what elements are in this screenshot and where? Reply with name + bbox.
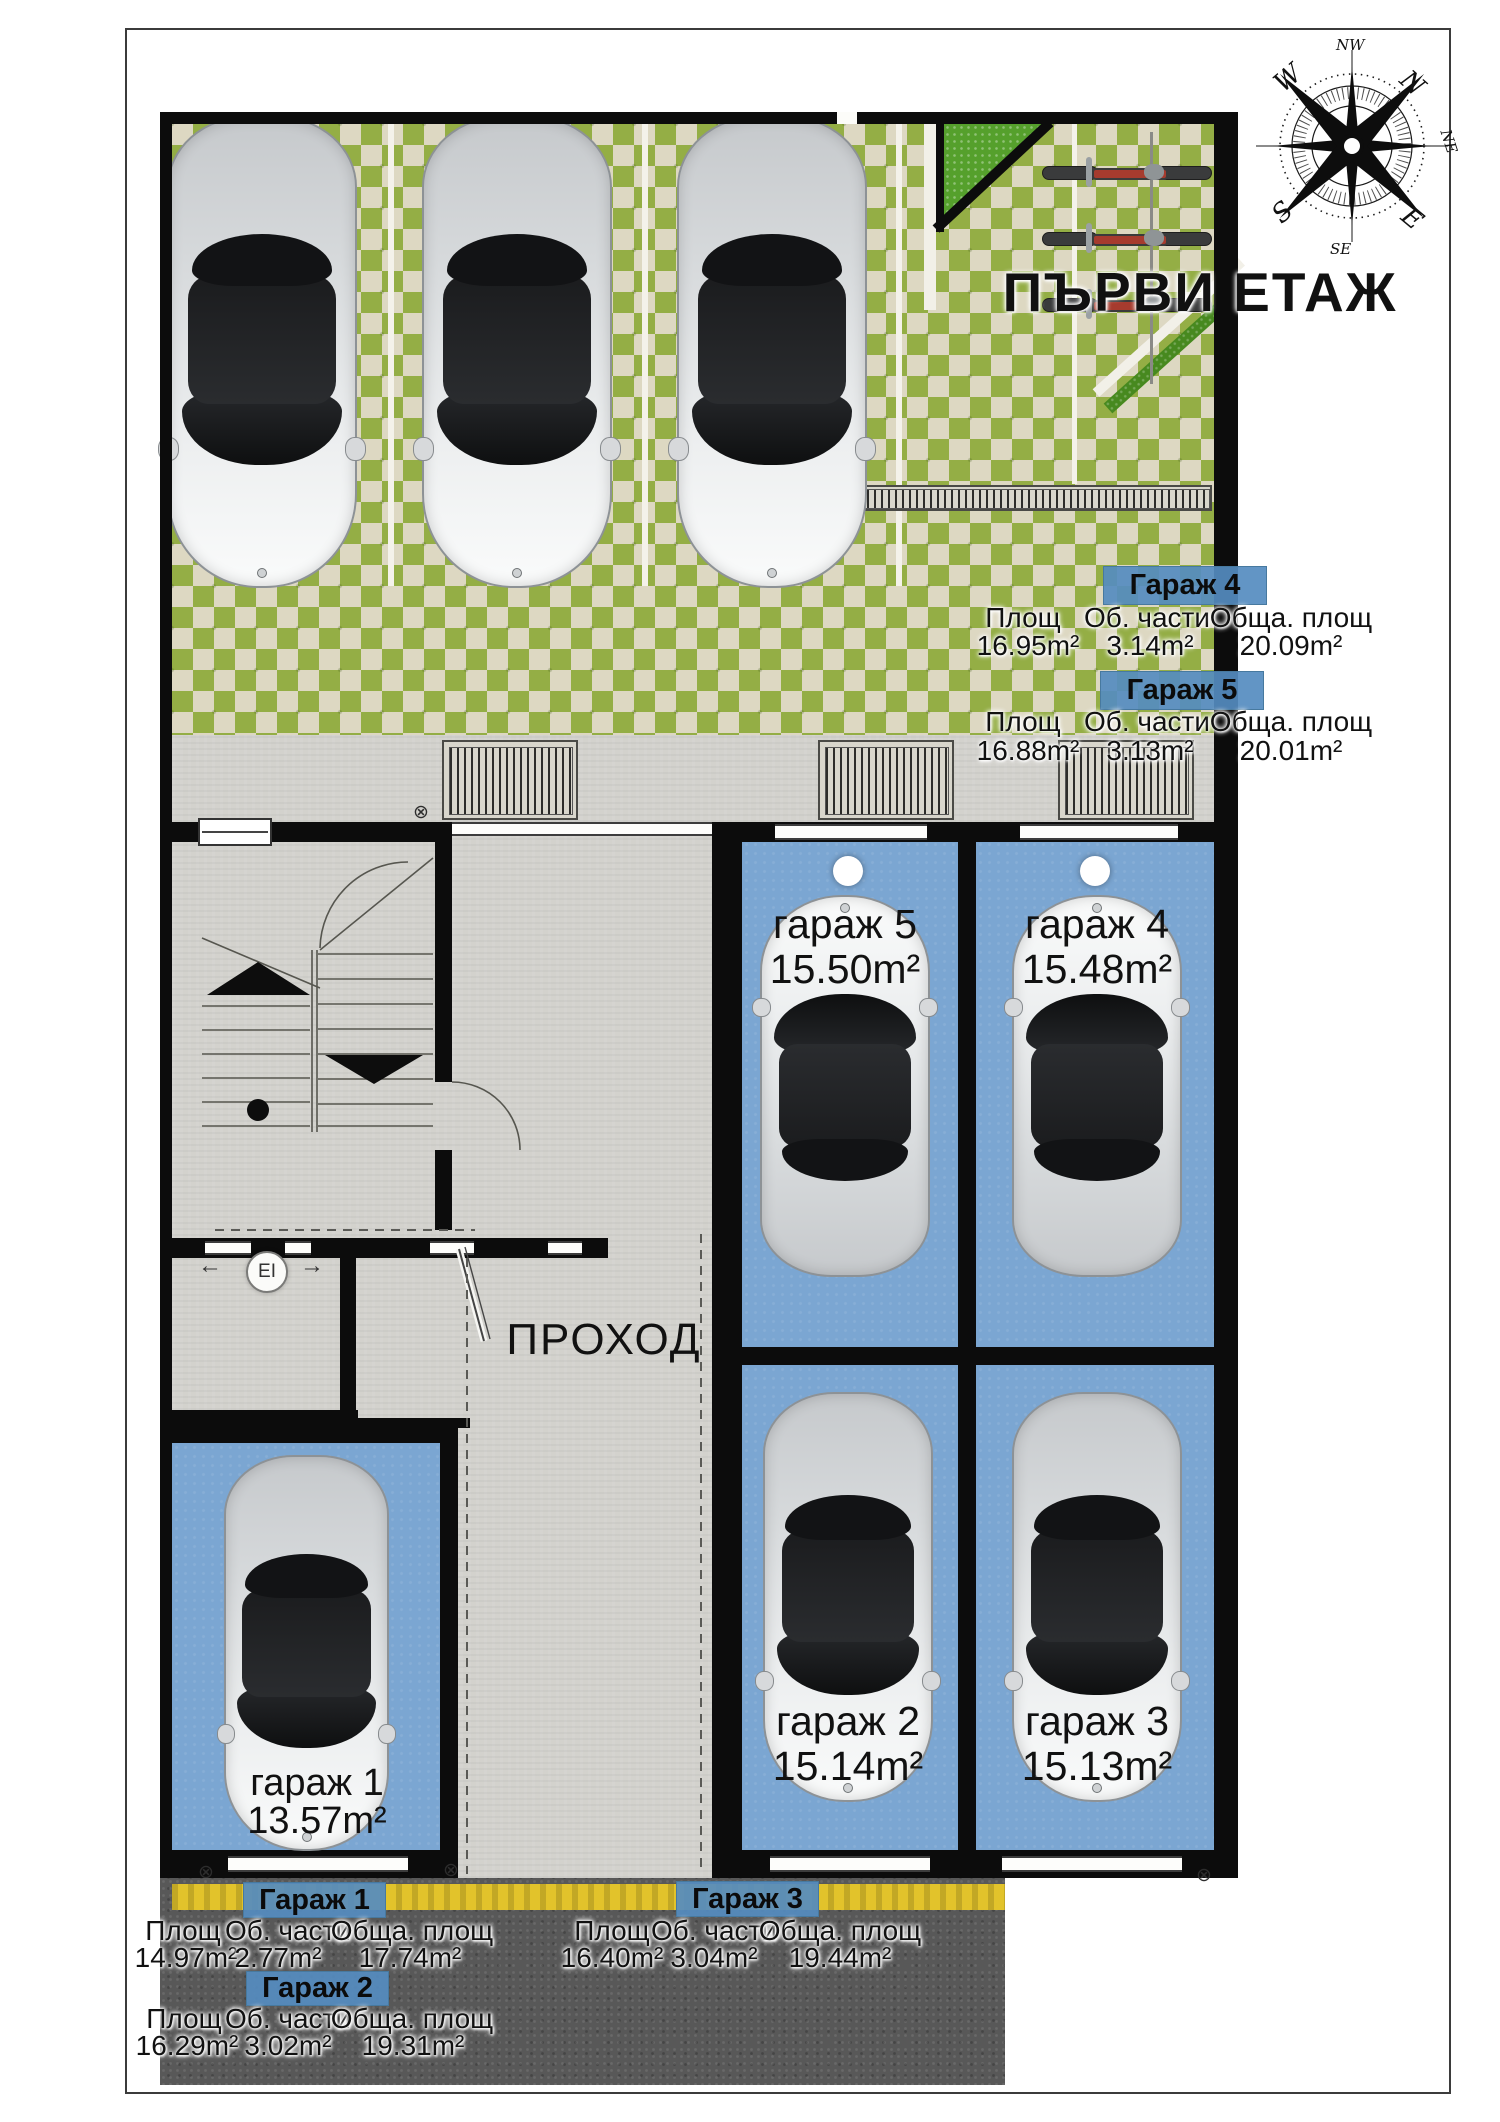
col-label-common: Об. части [1084,603,1210,632]
col-label-area: Площ [985,603,1060,632]
garage-2-area: 15.14m² [773,1745,923,1788]
value-total: 19.31m² [362,2031,465,2060]
garage-3-area: 15.13m² [1022,1745,1172,1788]
compass-label-se: SE [1330,240,1351,258]
col-label-area: Площ [985,707,1060,736]
value-common: 3.04m² [670,1943,757,1972]
garage-1-area: 13.57m² [247,1802,386,1842]
compass-label-ne: NE [1436,126,1461,155]
col-label-total: Обща. площ [1210,603,1372,632]
value-area: 16.88m² [977,736,1080,765]
value-area: 16.29m² [136,2031,239,2060]
garage-4-label: гараж 4 [1025,903,1169,946]
value-total: 20.09m² [1240,631,1343,660]
garage-5-label: гараж 5 [773,903,917,946]
col-label-total: Обща. площ [1210,707,1372,736]
garage-2-label: гараж 2 [776,1700,920,1743]
compass-label-nw: NW [1335,36,1366,54]
value-total: 20.01m² [1240,736,1343,765]
col-label-total: Обща. площ [331,2004,493,2033]
value-common: 3.02m² [244,2031,331,2060]
value-common: 3.13m² [1106,736,1193,765]
survey-marker-icon: ⊗ [413,803,429,822]
info-table-garage4-header: Гараж 4 [1103,566,1267,605]
elevator-symbol: EI [246,1251,288,1293]
value-total: 17.74m² [359,1943,462,1972]
garage-5-area: 15.50m² [770,948,920,991]
garage-light [833,856,863,886]
col-label-area: Площ [145,1916,220,1945]
corridor-label: ПРОХОД [506,1317,701,1363]
col-label-common: Об. части [1084,707,1210,736]
info-table-garage1-header: Гараж 1 [243,1882,386,1918]
value-common: 2.77m² [234,1943,321,1972]
value-common: 3.14m² [1106,631,1193,660]
col-label-area: Площ [574,1916,649,1945]
floor-plan-sheet: EI ← → ⊗ ⊗ ⊗ ⊗ гараж 5 15.50m² гараж 4 1… [0,0,1500,2122]
info-table-garage5-header: Гараж 5 [1100,671,1264,710]
elevator-label: EI [258,1261,276,1283]
value-area: 16.40m² [561,1943,664,1972]
garage-4-area: 15.48m² [1022,948,1172,991]
col-label-area: Площ [146,2004,221,2033]
compass-label-w: W [1268,57,1309,99]
garage-3-label: гараж 3 [1025,1700,1169,1743]
value-area: 16.95m² [977,631,1080,660]
value-area: 14.97m² [135,1943,238,1972]
survey-marker-icon: ⊗ [1196,1866,1212,1885]
col-label-total: Обща. площ [759,1916,921,1945]
elevator-arrow-right-icon: → [300,1252,324,1280]
elevator-arrow-left-icon: ← [198,1252,222,1280]
page-title: ПЪРВИ ЕТАЖ [1003,264,1398,322]
value-total: 19.44m² [789,1943,892,1972]
info-table-garage3-header: Гараж 3 [676,1881,819,1917]
compass-label-e: E [1394,200,1429,236]
info-table-garage2-header: Гараж 2 [246,1971,389,2006]
compass-rose-icon: N W S E NW NE SE [1242,36,1462,260]
garage-light [1080,856,1110,886]
col-label-total: Обща. площ [331,1916,493,1945]
garage-1-label: гараж 1 [250,1764,384,1804]
